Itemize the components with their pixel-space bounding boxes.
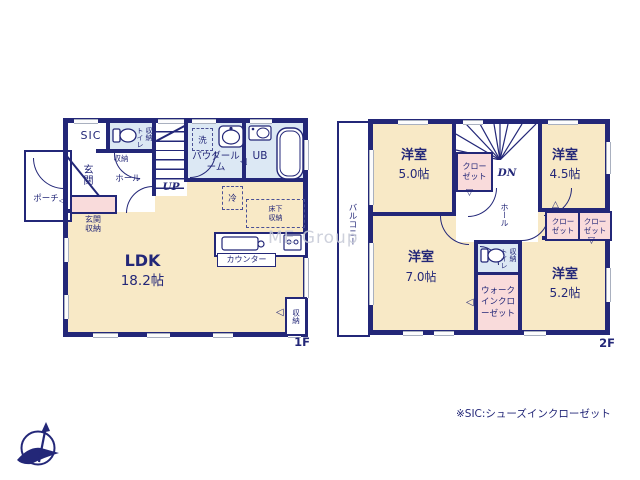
room-5-2-name: 洋室 bbox=[534, 267, 596, 282]
compass-icon bbox=[12, 416, 64, 472]
genkan-storage-label: 玄関収納 bbox=[73, 215, 113, 234]
room-5-0-name: 洋室 bbox=[384, 148, 444, 163]
ldk-storage-box: 収納 bbox=[285, 297, 307, 336]
door-fold-icon: ▽ bbox=[588, 237, 595, 246]
window bbox=[250, 119, 272, 124]
window bbox=[369, 243, 374, 305]
fridge-label: 冷 bbox=[228, 192, 237, 204]
sink-icon bbox=[218, 125, 244, 148]
hall-label-2f: ホール bbox=[497, 196, 509, 234]
room-7-0-name: 洋室 bbox=[390, 250, 452, 265]
room-5-0-size: 5.0帖 bbox=[384, 167, 444, 181]
window bbox=[463, 120, 483, 125]
window bbox=[64, 238, 69, 262]
footnote: ※SIC:シューズインクローゼット bbox=[456, 408, 640, 420]
window bbox=[524, 331, 546, 336]
wall-segment bbox=[478, 272, 518, 275]
closet-box: クローゼット bbox=[456, 152, 493, 192]
toilet-label-1f: トイレ bbox=[135, 124, 144, 151]
window bbox=[304, 140, 309, 170]
window bbox=[158, 119, 184, 124]
hall-storage-label: 収納 bbox=[106, 155, 136, 164]
toilet-label-2f: トイレ bbox=[499, 245, 508, 272]
genkan-label: 玄関 bbox=[80, 158, 92, 192]
washer-label: 洗 bbox=[198, 134, 207, 146]
room-7-0-size: 7.0帖 bbox=[390, 270, 452, 284]
wic-text: ウォークインクローゼット bbox=[480, 286, 516, 319]
closet-box: クローゼット bbox=[578, 211, 612, 241]
toilet-storage-label-1f: 収納 bbox=[144, 124, 153, 144]
balcony-label: バルコニー bbox=[344, 198, 357, 250]
bathtub-icon bbox=[276, 127, 304, 180]
wall-segment bbox=[474, 240, 522, 244]
window bbox=[192, 119, 216, 124]
room-4-5-size: 4.5帖 bbox=[535, 167, 595, 181]
wic-label: ウォークインクローゼット bbox=[479, 276, 517, 330]
genkan-storage-text: 玄関収納 bbox=[84, 215, 102, 234]
window bbox=[93, 333, 118, 338]
counter-label-box: カウンター bbox=[217, 253, 276, 267]
window bbox=[548, 120, 578, 125]
window bbox=[434, 331, 454, 336]
kitchen-sink-icon bbox=[221, 236, 265, 251]
wall-segment bbox=[474, 242, 478, 335]
ldk-size-label: 18.2帖 bbox=[100, 274, 185, 290]
window bbox=[147, 333, 170, 338]
underfloor-storage-label: 床下収納 bbox=[268, 205, 284, 222]
ldk-name-label: LDK bbox=[100, 252, 185, 271]
window bbox=[606, 268, 611, 302]
closet-label: クローゼット bbox=[551, 217, 575, 236]
underfloor-storage-box: 床下収納 bbox=[246, 199, 305, 228]
door-fold-icon: △ bbox=[552, 201, 559, 210]
wall-segment bbox=[96, 149, 155, 153]
room-5-2-size: 5.2帖 bbox=[534, 286, 596, 300]
floor1-tag: 1F bbox=[290, 336, 314, 350]
stairs-up-label: UP bbox=[155, 181, 187, 193]
genkan-storage-box bbox=[70, 195, 117, 214]
door-fold-icon: ▽ bbox=[466, 189, 473, 198]
window bbox=[64, 295, 69, 319]
hall-label-1f: ホール bbox=[108, 174, 148, 184]
sic-label: SIC bbox=[75, 130, 107, 143]
closet-label: クローゼット bbox=[462, 162, 488, 182]
powder-room-label: パウダールーム bbox=[188, 151, 244, 173]
door-fold-icon: ◁ bbox=[276, 308, 284, 318]
floor2-tag: 2F bbox=[594, 337, 620, 351]
wall-segment bbox=[368, 212, 456, 216]
window bbox=[403, 331, 423, 336]
bath-label: UB bbox=[248, 150, 272, 162]
window bbox=[398, 120, 428, 125]
fridge-box: 冷 bbox=[222, 186, 243, 210]
room-4-5-name: 洋室 bbox=[535, 148, 595, 163]
ldk-storage-label: 収納 bbox=[291, 309, 302, 324]
floorplan-canvas: ◁ ◁ カウンター 洗 冷 床下収納 収納 bbox=[0, 0, 640, 480]
window bbox=[74, 119, 98, 124]
door-fold-icon: ◁ bbox=[466, 298, 474, 308]
closet-box: クローゼット bbox=[545, 211, 581, 241]
window bbox=[213, 333, 233, 338]
porch-label: ポーチ bbox=[28, 194, 64, 204]
window bbox=[369, 150, 374, 205]
washer-box: 洗 bbox=[192, 128, 213, 151]
closet-label: クローゼット bbox=[583, 217, 607, 236]
bath-sink-icon bbox=[248, 125, 272, 141]
stairs-dn-label: DN bbox=[492, 167, 522, 179]
counter-label: カウンター bbox=[227, 255, 267, 264]
window bbox=[304, 258, 309, 298]
wall-segment bbox=[518, 242, 522, 335]
stove-icon bbox=[283, 234, 302, 251]
toilet-storage-label-2f: 収納 bbox=[508, 245, 517, 265]
window bbox=[606, 142, 611, 174]
